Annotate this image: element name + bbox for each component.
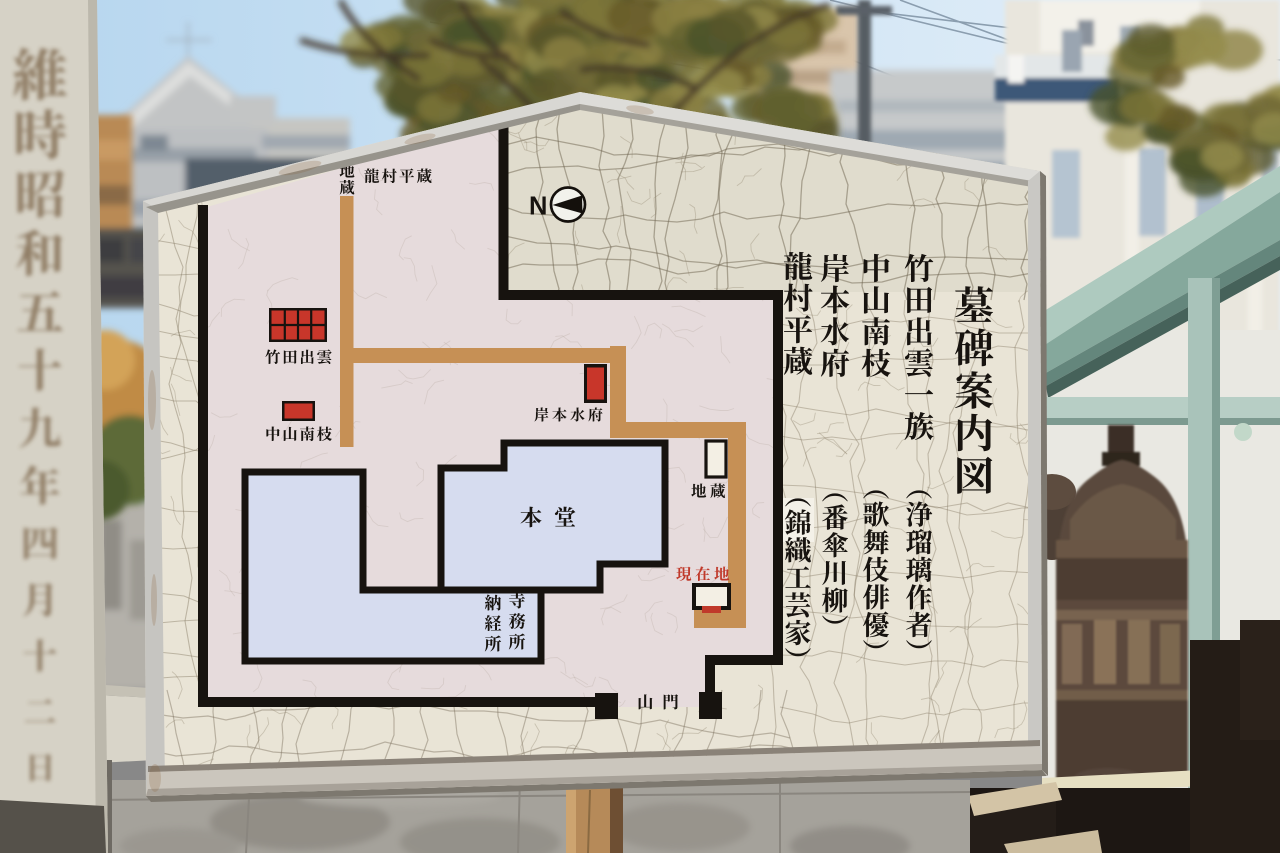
svg-text:N: N bbox=[529, 193, 547, 221]
